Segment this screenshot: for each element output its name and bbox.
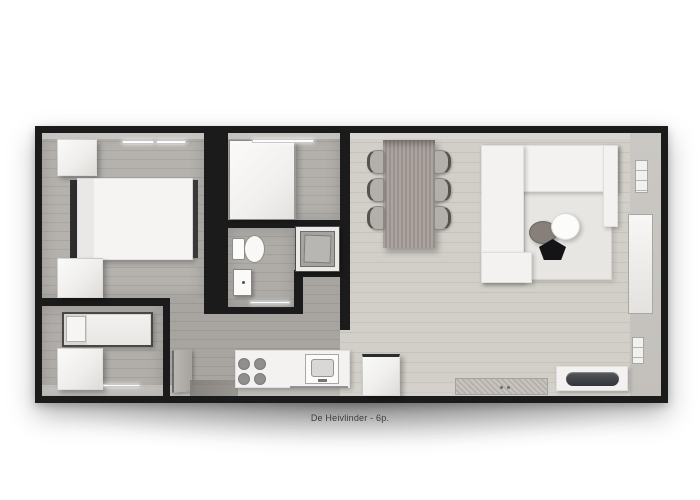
bunk-duvet <box>87 315 150 345</box>
window-small-bottom <box>632 337 644 364</box>
burner <box>254 373 266 385</box>
dining-chair <box>367 150 384 174</box>
shower <box>229 140 297 220</box>
doormat <box>455 378 548 395</box>
burner <box>254 358 266 370</box>
wall-master-bedroom-bottom <box>35 298 170 306</box>
bunk-pillow <box>66 316 86 342</box>
window-large <box>628 214 653 314</box>
mat-dot <box>500 386 503 389</box>
cooktop <box>238 358 272 386</box>
burner <box>238 373 250 385</box>
ceiling-light-master-1 <box>122 140 154 144</box>
wardrobe <box>57 139 97 176</box>
ceiling-light-toilet <box>250 301 290 304</box>
basin-tap <box>242 281 245 284</box>
toilet <box>232 235 265 263</box>
plan-caption: De Heivlinder - 6p. <box>0 413 700 423</box>
ceiling-light-shower-room <box>252 139 314 143</box>
dining-chair <box>367 178 384 202</box>
double-bed <box>70 178 198 260</box>
corner-sofa-right-back <box>603 145 618 227</box>
wardrobe-bunk-room <box>57 348 103 390</box>
window-small-top <box>635 160 648 193</box>
dining-chair <box>434 150 451 174</box>
dining-chair <box>434 178 451 202</box>
bed-footboard <box>193 180 198 258</box>
wall-living-room-left <box>340 126 350 330</box>
entrance-door <box>172 349 192 392</box>
mat-dot <box>507 386 510 389</box>
toilet-bowl <box>244 235 265 263</box>
shower-glass <box>294 141 296 219</box>
kitchen-sink <box>305 354 339 384</box>
nightstand <box>57 258 103 298</box>
ceiling-light-bunk-room <box>103 384 140 387</box>
tv <box>566 372 619 386</box>
dining-table <box>383 140 435 248</box>
washing-machine-top <box>300 231 335 267</box>
washing-machine-lid <box>304 235 332 264</box>
burner <box>238 358 250 370</box>
bed-headboard <box>70 180 77 258</box>
fridge <box>362 354 400 396</box>
dining-chair <box>434 206 451 230</box>
hand-basin <box>233 269 252 296</box>
floorplan <box>35 126 668 403</box>
top-wall-inner-face <box>42 133 630 139</box>
coffee-table-white <box>551 213 580 240</box>
floorplan-canvas: De Heivlinder - 6p. <box>0 0 700 500</box>
bed-mattress <box>77 178 193 260</box>
bunk-bed <box>62 312 153 347</box>
washing-machine <box>295 226 340 272</box>
wall-bunk-bedroom-right <box>163 306 170 396</box>
wall-toilet-room-bottom <box>204 307 303 314</box>
ceiling-light-master-2 <box>156 140 186 144</box>
sink-tap <box>318 379 327 382</box>
corner-sofa-foot <box>481 252 532 283</box>
sink-basin <box>311 359 334 377</box>
dining-chair <box>367 206 384 230</box>
counter-edge-line <box>290 386 348 388</box>
entrance-floor-shadow <box>190 380 238 396</box>
